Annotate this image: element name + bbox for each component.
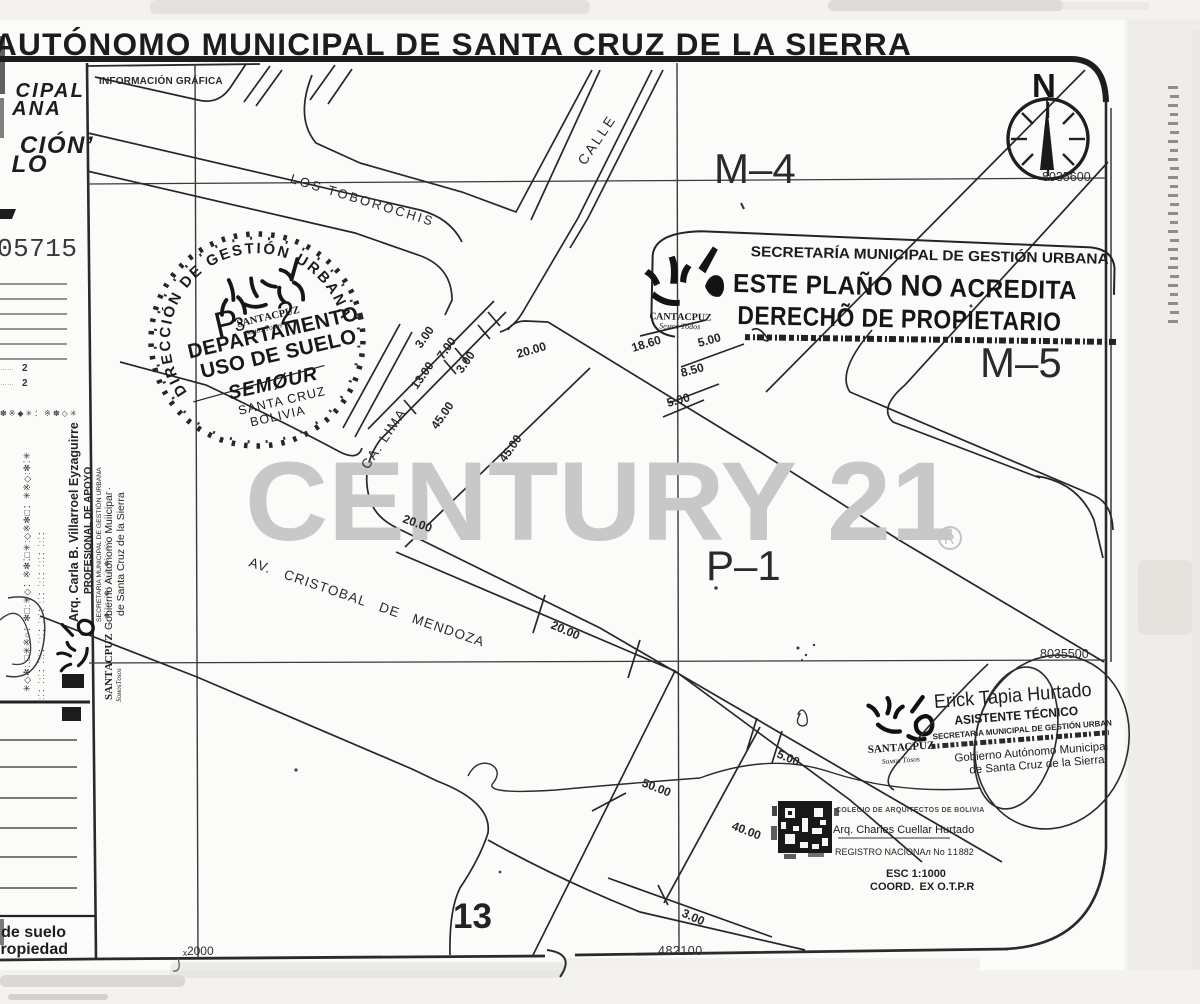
svg-text:M–5: M–5 [980,339,1062,386]
svg-text:COLEGIO DE АRQUITECTOЅ DE BOLI: COLEGIO DE АRQUITECTOЅ DE BOLIVIA [836,807,985,814]
svg-text:INFORMACIÓN GRÁFICA: INFORMACIÓN GRÁFICA [99,74,223,87]
svg-text:SECRETARIA MUNICIPAL DE GESTIÓ: SECRETARIA MUNICIPAL DE GESTIÓN URBANA [94,467,103,622]
svg-text:EЅC 1:1000: EЅC 1:1000 [886,868,946,880]
svg-text:✽※◆✳：※✽◇✳: ✽※◆✳：※✽◇✳ [0,409,79,418]
svg-text:……: …… [0,365,14,372]
svg-text:Arq. Charles Cuellar Hurtado: Arq. Charles Cuellar Hurtado [833,824,974,836]
svg-text:Gobierno Autonomo Muііcipaг ·: Gobierno Autonomo Muііcipaг · [103,487,115,630]
svg-text:ₓ2000: ₓ2000 [183,944,214,958]
svg-text:LO: LO [12,151,48,178]
svg-text:PROFESIONAL DE APOYO: PROFESIONAL DE APOYO [83,467,94,594]
svg-text:CENTURY 21: CENTURY 21 [245,439,955,564]
svg-text:ropiedad: ropiedad [0,941,68,958]
svg-text:M–4: M–4 [714,145,796,192]
svg-text:✳◇✻:⁚□✳※○：✻□:✳◇：※✻⁚□✳:◇※✻□：✳※◇: ✳◇✻:⁚□✳※○：✻□:✳◇：※✻⁚□✳:◇※✻□：✳※◇:✻⁚✳ [22,451,32,692]
svg-text::⁚：⁚:⁚：⁚:⁚：⁚:⁚：⁚:⁚：:⁚：⁚:⁚：⁚:⁚：: :⁚：⁚:⁚：⁚:⁚：⁚:⁚：⁚:⁚：:⁚：⁚:⁚：⁚:⁚：⁚:⁚： [37,527,46,701]
svg-text:13: 13 [453,897,492,936]
svg-text:P–1: P–1 [706,542,781,589]
svg-text:R: R [944,531,955,548]
svg-text:Sемоѕ Tоdоѕ: Sемоѕ Tоdоѕ [659,321,700,331]
svg-text:COORD. EX O.T.P.R: COORD. EX O.T.P.R [870,881,974,893]
svg-text:……: …… [0,380,14,387]
svg-text:Arq. Carla B. Villarroel Eyzag: Arq. Carla B. Villarroel Eyzaguirre [67,422,81,622]
svg-text:2: 2 [22,378,28,389]
svg-text:ЅАNTАСРUZ: ЅАNTАСРUZ [103,633,115,700]
svg-text:ANA: ANA [11,98,62,120]
svg-text:SомоѕTоѕоѕ: SомоѕTоѕоѕ [115,668,123,702]
svg-text:2: 2 [22,363,28,374]
svg-text:05715: 05715 [0,234,78,264]
svg-text:482100: 482100 [658,944,703,958]
svg-text:N: N [1032,67,1056,104]
svg-text:de suelo: de suelo [1,924,66,941]
svg-text:de Santa Cruz de la Ѕіеrra: de Santa Cruz de la Ѕіеrra [115,492,127,616]
svg-text:REGISTRO NACIONАл Nο 1 1 882: REGISTRO NACIONАл Nο 1 1 882 [835,847,974,857]
svg-text:8035600: 8035600 [1042,170,1091,184]
